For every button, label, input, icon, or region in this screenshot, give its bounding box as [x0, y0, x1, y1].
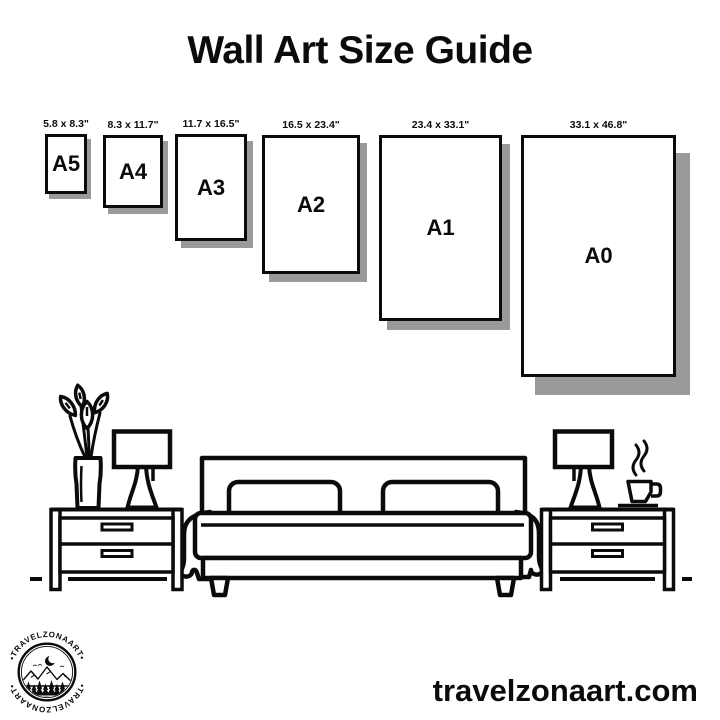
size-letter-a2: A2 [297, 192, 325, 218]
bed-leg-left [211, 578, 228, 595]
mountains-icon [18, 667, 76, 686]
size-label-a1: 23.4 x 33.1" [412, 120, 470, 132]
brand-logo: •TRAVELZONAART• •TRAVELZONAART• [2, 627, 92, 717]
size-label-a2: 16.5 x 23.4" [282, 120, 340, 132]
plant-vase [75, 458, 101, 508]
size-frame-a5: A5 [45, 134, 87, 194]
coffee-cup [618, 441, 661, 506]
website-url: travelzonaart.com [433, 675, 698, 706]
page-title: Wall Art Size Guide [0, 31, 720, 70]
lamp-shade [555, 432, 612, 468]
size-letter-a1: A1 [426, 215, 454, 241]
logo-mountain-scene [18, 654, 76, 701]
bed-mattress [195, 513, 531, 558]
size-frame-a1: A1 [379, 135, 502, 321]
bed [181, 458, 542, 595]
table-lamp-right [555, 432, 612, 508]
size-letter-a3: A3 [197, 175, 225, 201]
drawer-handle [593, 551, 623, 557]
drawer-handle [102, 551, 132, 557]
size-letter-a0: A0 [584, 243, 612, 269]
size-label-a5: 5.8 x 8.3" [43, 119, 89, 131]
size-frame-a3: A3 [175, 134, 247, 241]
drawer-handle [593, 524, 623, 530]
size-label-a3: 11.7 x 16.5" [183, 119, 240, 131]
size-label-a4: 8.3 x 11.7" [107, 120, 158, 132]
svg-text:•TRAVELZONAART•: •TRAVELZONAART• [7, 630, 86, 661]
wall-art-size-guide-poster: Wall Art Size Guide 5.8 x 8.3"A58.3 x 11… [0, 0, 720, 720]
cup-body [628, 482, 651, 502]
logo-arc-text-top: •TRAVELZONAART• [7, 630, 86, 661]
table-lamp-left [114, 432, 170, 508]
coffee-steam [633, 441, 647, 475]
size-letter-a4: A4 [119, 159, 147, 185]
size-frame-a2: A2 [262, 135, 360, 274]
drawer-handle [102, 524, 132, 530]
bedroom-illustration [0, 380, 720, 615]
bed-base [203, 558, 521, 578]
bed-leg-right [497, 578, 514, 595]
lamp-shade [114, 432, 170, 468]
size-label-a0: 33.1 x 46.8" [570, 120, 628, 132]
size-frame-a4: A4 [103, 135, 163, 208]
size-letter-a5: A5 [52, 151, 80, 177]
plant-leaves [57, 384, 111, 428]
plant [57, 384, 111, 508]
vase-highlight-line [81, 466, 82, 502]
size-frame-a0: A0 [521, 135, 676, 377]
